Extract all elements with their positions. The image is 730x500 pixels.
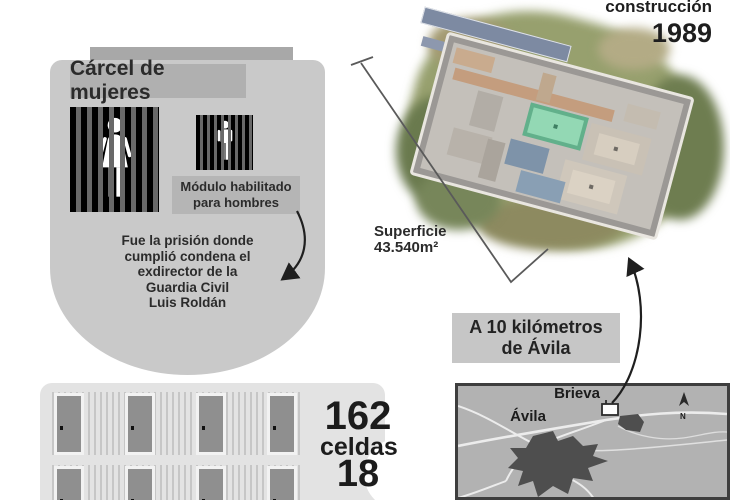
woman-behind-bars-icon: [70, 107, 159, 212]
description-line: Luis Roldán: [95, 295, 280, 311]
cell-door: [196, 393, 226, 455]
cell-door: [54, 393, 84, 455]
description-line: exdirector de la: [95, 264, 280, 280]
infographic-canvas: Cárcel de mujeres: [0, 0, 730, 500]
map-label-avila: Ávila: [497, 408, 559, 425]
cell-wall-stripes: [52, 465, 300, 500]
prison-location-marker: [602, 404, 618, 415]
compass-label: N: [680, 412, 686, 421]
cell-bars: [70, 107, 159, 212]
door-handle: [202, 426, 205, 430]
cell-door: [267, 393, 297, 455]
construction-block: construcción 1989: [605, 0, 712, 49]
prison-description: Fue la prisión donde cumplió condena el …: [95, 233, 280, 311]
module-label-text: Módulo habilitado para hombres: [172, 179, 300, 212]
map-label-brieva: Brieva: [542, 385, 612, 402]
description-line: cumplió condena el: [95, 249, 280, 265]
cell-bars: [196, 115, 253, 170]
construction-label: construcción: [605, 0, 712, 17]
distance-box: A 10 kilómetros de Ávila: [452, 313, 620, 363]
dimension-cap: [351, 57, 373, 65]
surface-label: Superficie: [374, 224, 447, 240]
surface-value: 43.540m²: [374, 240, 447, 256]
description-line: Fue la prisión donde: [95, 233, 280, 249]
cell-wall-stripes: [52, 392, 300, 455]
page-title: Cárcel de mujeres: [70, 64, 246, 98]
surface-block: Superficie 43.540m²: [374, 224, 447, 256]
man-behind-bars-icon: [196, 115, 253, 170]
page-title-text: Cárcel de mujeres: [70, 57, 246, 105]
distance-line2: de Ávila: [501, 338, 570, 359]
cell-door: [196, 466, 226, 500]
door-handle: [273, 426, 276, 430]
door-handle: [60, 426, 63, 430]
description-line: Guardia Civil: [95, 280, 280, 296]
construction-year: 1989: [605, 18, 712, 49]
second-count: 18: [320, 453, 396, 496]
cell-door: [267, 466, 297, 500]
cell-door: [54, 466, 84, 500]
cell-door: [125, 466, 155, 500]
distance-line1: A 10 kilómetros: [469, 317, 602, 338]
door-handle: [131, 426, 134, 430]
module-label-box: Módulo habilitado para hombres: [172, 176, 300, 214]
cell-door: [125, 393, 155, 455]
